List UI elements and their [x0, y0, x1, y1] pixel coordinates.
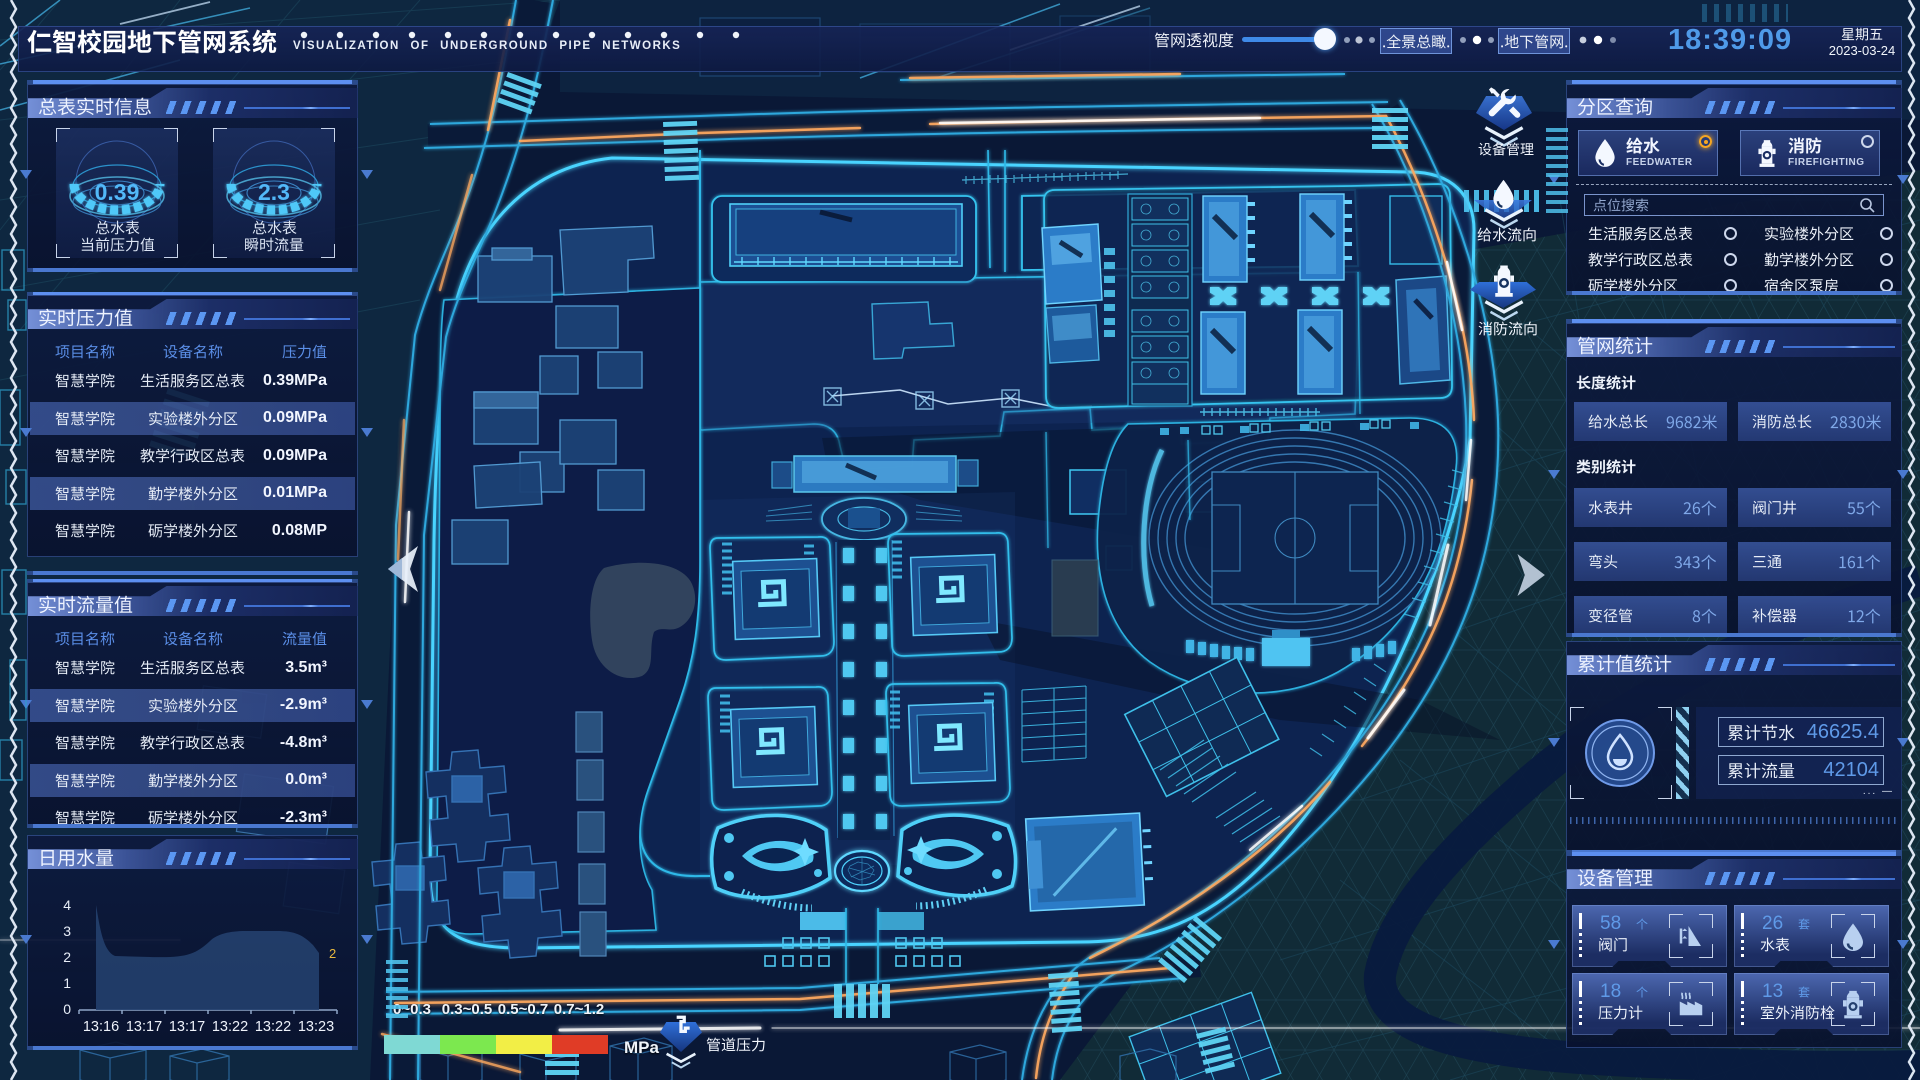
svg-text:2: 2	[329, 946, 336, 961]
svg-text:0: 0	[63, 1001, 71, 1017]
svg-text:13:22: 13:22	[255, 1019, 291, 1035]
svg-text:13:23: 13:23	[298, 1019, 334, 1035]
svg-text:2: 2	[63, 949, 71, 965]
svg-text:13:17: 13:17	[169, 1019, 205, 1035]
svg-text:3: 3	[63, 923, 71, 939]
svg-text:13:22: 13:22	[212, 1019, 248, 1035]
svg-text:13:17: 13:17	[126, 1019, 162, 1035]
svg-text:13:16: 13:16	[83, 1019, 119, 1035]
svg-text:1: 1	[63, 975, 71, 991]
svg-text:4: 4	[63, 897, 71, 913]
svg-text:2.3: 2.3	[258, 179, 290, 205]
svg-text:0.39: 0.39	[95, 179, 140, 205]
